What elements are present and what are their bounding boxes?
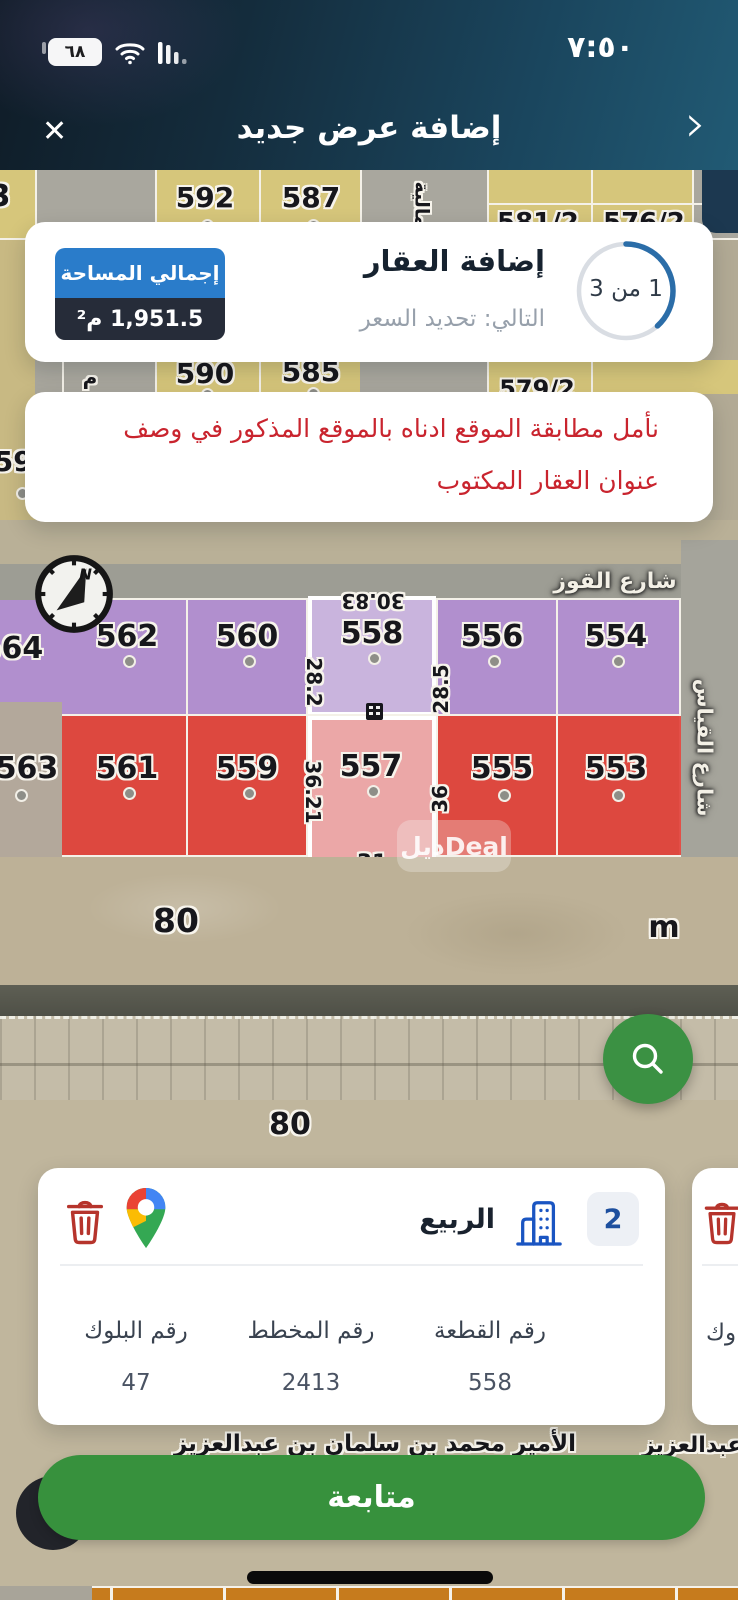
step-indicator: 1 من 3 — [571, 276, 681, 302]
parcel-label-556: 556 — [452, 620, 532, 653]
building-icon — [515, 1194, 563, 1252]
parcel-label-560: 560 — [207, 620, 287, 653]
search-fab[interactable] — [603, 1014, 693, 1104]
map-road-dark — [0, 985, 738, 1016]
parcel-info-card[interactable]: 2 الربيع رقم القطعة 558 رقم المخطط 2413 … — [38, 1168, 665, 1425]
district-name: الربيع — [419, 1204, 495, 1235]
parcel-label-553: 553 — [576, 752, 656, 785]
wizard-title: إضافة العقار — [364, 244, 545, 278]
status-time: ٧:٥٠ — [567, 30, 634, 65]
parcel-label-557: 557 — [331, 750, 411, 783]
field-label-fragment: وك — [706, 1320, 736, 1346]
field-plan-number: رقم المخطط 2413 — [226, 1318, 396, 1396]
parcel-label-590: 590 — [165, 359, 245, 390]
unit-count: 2 — [604, 1204, 623, 1235]
field-value: 2413 — [226, 1370, 396, 1396]
parcel-label-587: 587 — [271, 183, 351, 214]
delete-button[interactable] — [700, 1196, 738, 1250]
parcel-label-561: 561 — [87, 752, 167, 785]
dimension-label-upper-left: 28.2 — [303, 632, 325, 732]
poi-icon — [366, 702, 383, 725]
dimension-label-top: 30.83 — [323, 590, 423, 612]
progress-ring: 1 من 3 — [571, 236, 681, 346]
cellular-icon — [158, 40, 192, 70]
map-gray-cell — [360, 360, 487, 394]
trash-icon — [700, 1235, 738, 1250]
back-button[interactable]: › — [685, 98, 706, 150]
continue-button[interactable]: متابعة — [38, 1455, 705, 1540]
street-label-prince-mohammed: الأمير محمد بن سلمان بن عبدالعزيز — [95, 1432, 655, 1457]
road-width-label-80-upper: 80 — [126, 903, 226, 939]
area-badge-label: إجمالي المساحة — [60, 261, 219, 285]
watermark: ديلDeal — [397, 820, 511, 872]
screen: 3 592 587 مالية 581/2 576/2 م 590 585 57… — [0, 0, 738, 1600]
parcel-label-maliya: مالية — [411, 181, 432, 215]
google-maps-button[interactable] — [122, 1186, 170, 1254]
parcel-label-559: 559 — [207, 752, 287, 785]
page-title: إضافة عرض جديد — [0, 110, 738, 146]
notice-text-line2: عنوان العقار المكتوب — [55, 468, 659, 494]
svg-text:N: N — [79, 566, 92, 584]
header-notch — [702, 170, 738, 233]
parcel-label-3: 3 — [0, 180, 20, 213]
dimension-label-lower-left: 36.21 — [302, 742, 324, 842]
field-label: رقم البلوك — [51, 1318, 221, 1344]
map-orange-strip — [0, 1586, 738, 1600]
home-indicator[interactable] — [247, 1571, 493, 1584]
field-plot-number: رقم القطعة 558 — [405, 1318, 575, 1396]
notice-text-line1: نأمل مطابقة الموقع ادناه بالموقع المذكور… — [55, 416, 659, 442]
field-value: 558 — [405, 1370, 575, 1396]
field-block-number: رقم البلوك 47 — [51, 1318, 221, 1396]
trash-icon — [62, 1235, 108, 1250]
card-divider — [702, 1264, 738, 1266]
wizard-card: 1 من 3 إضافة العقار التالي: تحديد السعر … — [25, 222, 713, 362]
field-label: رقم القطعة — [405, 1318, 575, 1344]
unit-count-chip: 2 — [587, 1192, 639, 1246]
wifi-icon — [114, 40, 146, 70]
map-khaki-cell — [0, 360, 35, 394]
continue-button-label: متابعة — [327, 1480, 415, 1515]
notice-card: نأمل مطابقة الموقع ادناه بالموقع المذكور… — [25, 392, 713, 522]
parcel-label-563: 563 — [0, 752, 67, 785]
field-value: 47 — [51, 1370, 221, 1396]
search-icon — [603, 1038, 693, 1080]
parcel-label-592: 592 — [165, 183, 245, 214]
google-maps-icon — [122, 1239, 170, 1254]
street-label-alqiyas: شارع القياس — [692, 678, 715, 818]
map-gray-strip — [0, 1586, 92, 1600]
wizard-subtitle: التالي: تحديد السعر — [360, 306, 545, 332]
app-header: ٧:٥٠ ٦٨ ✕ إضافة عرض جديد › — [0, 0, 738, 170]
field-label: رقم المخطط — [226, 1318, 396, 1344]
dimension-label-upper-right: 28.5 — [430, 639, 452, 739]
parcel-label-m-frag: م — [75, 366, 105, 388]
battery-indicator: ٦٨ — [48, 38, 102, 66]
compass-icon: N — [31, 551, 117, 641]
road-width-label-80-lower: 80 — [240, 1108, 340, 1141]
area-badge-value: 1,951.5 م² — [77, 307, 204, 332]
area-badge: إجمالي المساحة 1,951.5 م² — [55, 248, 225, 340]
parcel-info-card-partial[interactable]: وك — [692, 1168, 738, 1425]
meters-label: m — [624, 911, 704, 944]
parcel-label-555: 555 — [462, 752, 542, 785]
parcel-label-558: 558 — [332, 617, 412, 650]
delete-button[interactable] — [62, 1194, 108, 1250]
parcel-label-554: 554 — [576, 620, 656, 653]
battery-cap — [42, 42, 46, 54]
street-label-alqooz: شارع القوز — [540, 570, 690, 594]
card-divider — [60, 1264, 643, 1266]
